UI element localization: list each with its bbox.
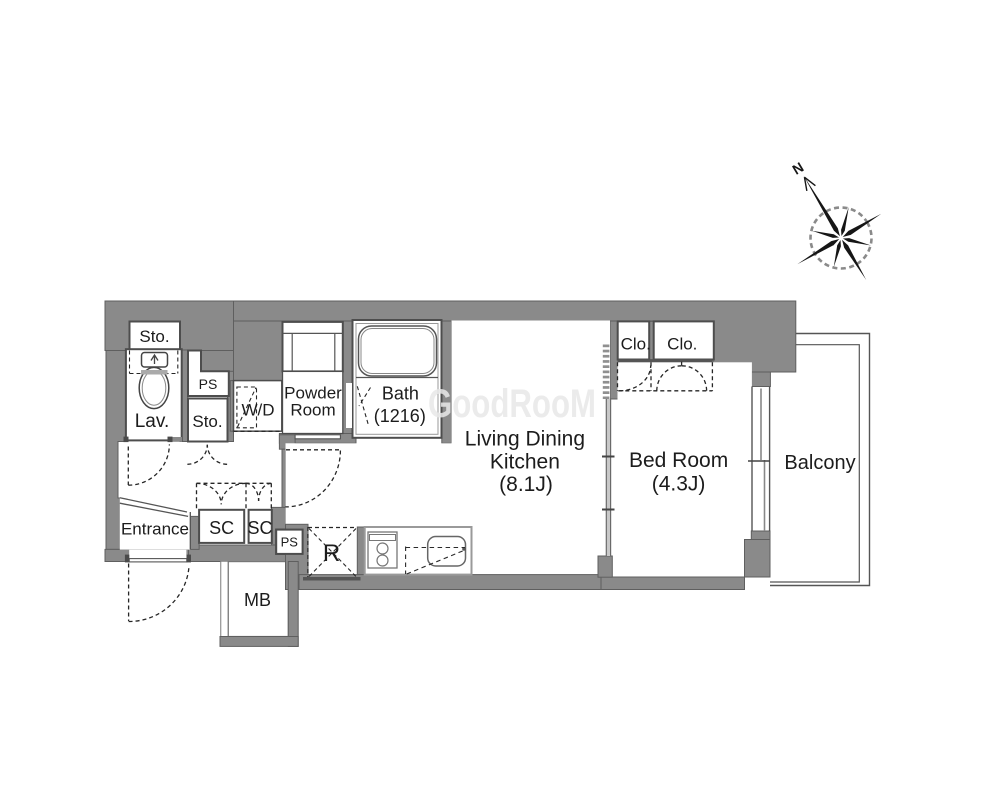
svg-text:GoodRooM: GoodRooM (428, 381, 596, 426)
svg-text:Bed Room: Bed Room (629, 449, 728, 472)
svg-text:Kitchen: Kitchen (490, 451, 560, 474)
svg-text:Lav.: Lav. (135, 411, 170, 432)
svg-text:Bath: Bath (382, 384, 419, 404)
svg-text:MB: MB (244, 590, 271, 610)
svg-text:(4.3J): (4.3J) (652, 473, 706, 496)
svg-text:(1216): (1216) (374, 406, 426, 426)
svg-text:Sto.: Sto. (192, 412, 222, 431)
svg-text:Clo.: Clo. (667, 335, 697, 354)
svg-text:Clo.: Clo. (621, 335, 651, 354)
svg-text:R: R (323, 540, 340, 567)
svg-text:SC: SC (209, 518, 234, 538)
svg-text:PS: PS (281, 535, 299, 550)
svg-text:N: N (789, 159, 806, 178)
svg-text:Living Dining: Living Dining (465, 428, 585, 451)
svg-text:Sto.: Sto. (139, 327, 169, 346)
svg-text:(8.1J): (8.1J) (499, 473, 553, 496)
svg-text:Entrance: Entrance (121, 520, 189, 539)
svg-text:Balcony: Balcony (784, 452, 855, 474)
svg-text:SC: SC (247, 518, 272, 538)
svg-text:Room: Room (290, 401, 335, 420)
svg-text:W/D: W/D (241, 401, 274, 420)
svg-text:PS: PS (199, 376, 218, 392)
